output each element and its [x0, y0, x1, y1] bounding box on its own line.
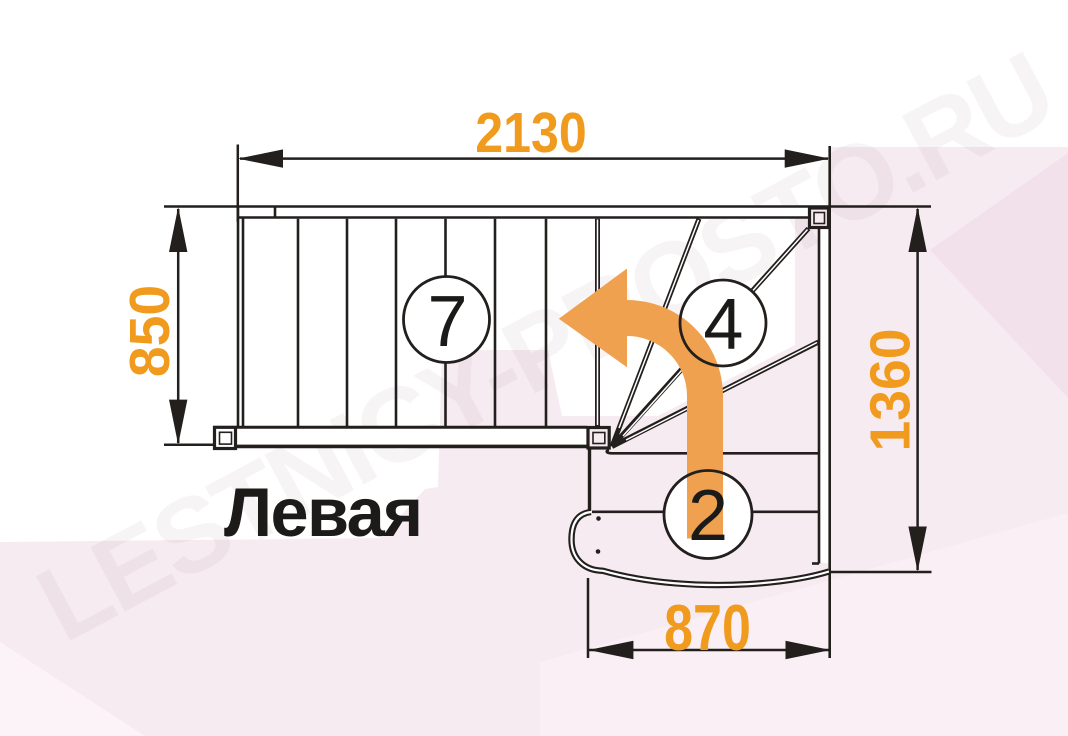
svg-text:2130: 2130 — [475, 101, 587, 165]
svg-text:4: 4 — [703, 285, 743, 365]
svg-text:850: 850 — [117, 285, 181, 377]
svg-text:Левая: Левая — [224, 474, 421, 551]
svg-text:7: 7 — [427, 282, 467, 362]
svg-text:870: 870 — [664, 593, 751, 665]
svg-text:1360: 1360 — [858, 329, 922, 452]
svg-text:2: 2 — [688, 476, 728, 556]
